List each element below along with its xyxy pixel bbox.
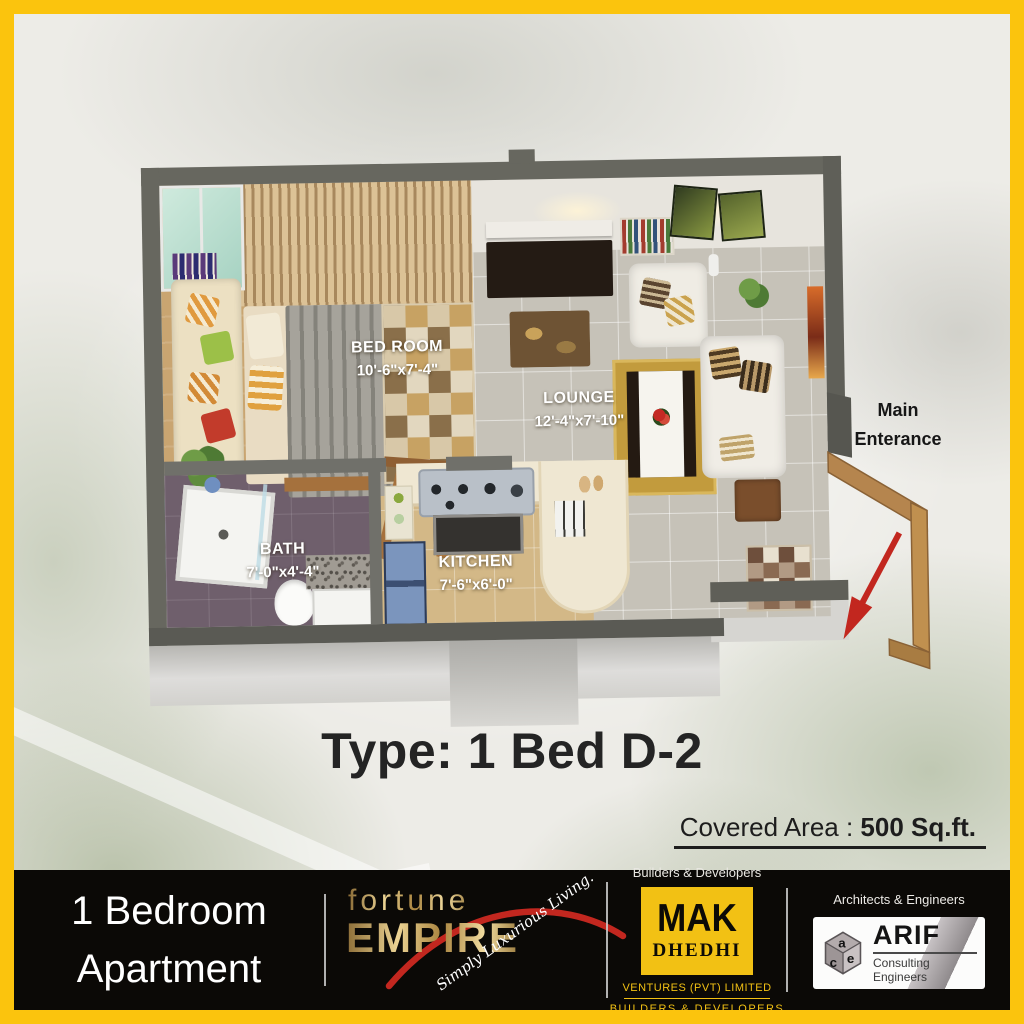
entrance-line1: Main [877,400,918,420]
cube-letter-c: c [830,955,838,970]
covered-area: Covered Area : 500 Sq.ft. [674,812,986,849]
divider [873,952,977,954]
arif-logo: Architects & Engineers a e c ARIF [788,892,1010,989]
bookshelf [620,217,675,256]
gas-stove [418,467,535,517]
room-dims: 7'-0"x4'-4" [212,560,354,585]
room-label-bath: BATH 7'-0"x4'-4" [211,536,354,585]
room-dims: 10'-6"x7'-4" [322,358,472,383]
cushion [199,330,234,365]
lounge-small-rug [509,310,590,367]
room-label-bedroom: BED ROOM 10'-6"x7'-4" [322,334,473,383]
ace-cube-icon: a e c [821,925,865,981]
mak-logo-box: MAK DHEDHI [641,887,753,975]
fortune-wordmark: fortune [348,884,469,918]
interior-wall [446,456,512,471]
unit-name-line2: Apartment [77,947,262,991]
entrance-arrow-icon [843,533,901,636]
room-dims: 12'-4"x7'-10" [503,409,655,434]
room-dims: 7'-6"x6'-0" [402,573,550,598]
dhedhi-name: DHEDHI [652,940,741,962]
unit-type-title: Type: 1 Bed D-2 [14,722,1010,780]
bed-pillow [247,365,284,411]
entrance-line2: Enterance [854,429,941,449]
fortune-empire-logo: fortune EMPIRE Simply Luxurious Living. [326,870,606,1010]
main-entrance-label: Main Enterance [840,396,956,454]
plan-pedestal [149,636,720,706]
room-label-kitchen: KITCHEN 7'-6"x6'-0" [402,549,551,598]
armchair [629,262,708,347]
cushion [738,359,772,393]
divider [786,888,788,992]
bed-foot-frame [284,476,380,492]
footer-bar: 1 Bedroom Apartment fortune EMPIRE Simpl… [14,870,1010,1010]
book-shelf [172,253,216,280]
mak-caption: Builders & Developers [633,865,762,880]
poster-content: BED ROOM 10'-6"x7'-4" LOUNGE 12'-4"x7'-1… [14,14,1010,1010]
sofa [700,335,786,478]
room-name: KITCHEN [402,549,550,576]
canister-shelf [384,485,413,539]
wall-notch [509,149,535,163]
door-frame-side [911,502,930,652]
floor-plan: BED ROOM 10'-6"x7'-4" LOUNGE 12'-4"x7'-1… [141,156,849,646]
plan-pedestal-step [449,639,578,727]
room-name: BED ROOM [322,334,472,361]
divider [606,882,608,998]
mak-builders-line: BUILDERS & DEVELOPERS [610,1003,785,1010]
cube-letter-e: e [847,951,854,966]
arif-caption: Architects & Engineers [833,892,965,907]
cushion [708,346,742,380]
divider [624,998,770,999]
cube-letter-a: a [838,935,846,950]
room-name: LOUNGE [503,385,655,412]
covered-area-value: 500 Sq.ft. [860,812,976,842]
wall-art [807,286,825,378]
arif-name: ARIF [873,922,977,949]
vase [708,254,718,276]
poster: BED ROOM 10'-6"x7'-4" LOUNGE 12'-4"x7'-1… [0,0,1024,1024]
tv-shelf [486,220,612,238]
mak-name: MAK [657,899,737,938]
wall-art [718,190,766,242]
wall-art [670,185,718,241]
bedroom-panel-wall [236,180,473,306]
arif-subtitle: Consulting Engineers [873,956,977,984]
room-label-lounge: LOUNGE 12'-4"x7'-10" [503,385,656,434]
cushion [719,434,756,462]
bath-sink [312,588,373,627]
tv-unit [486,240,613,298]
spice-jars [555,500,586,537]
bed-pillow [245,312,284,360]
cushion [663,294,696,327]
unit-name-line1: 1 Bedroom [71,889,267,933]
side-table [734,479,781,522]
room-name: BATH [211,536,353,562]
cushion [187,371,220,404]
mak-ventures-line: VENTURES (PVT) LIMITED [622,982,771,994]
counter-vases [574,472,608,493]
mak-dhedhi-logo: Builders & Developers MAK DHEDHI VENTURE… [608,865,786,1010]
unit-name: 1 Bedroom Apartment [14,882,324,998]
arif-text-block: ARIF Consulting Engineers [873,922,977,984]
arif-logo-box: a e c ARIF Consulting Engineers [813,917,985,989]
covered-area-label: Covered Area : [680,812,861,842]
